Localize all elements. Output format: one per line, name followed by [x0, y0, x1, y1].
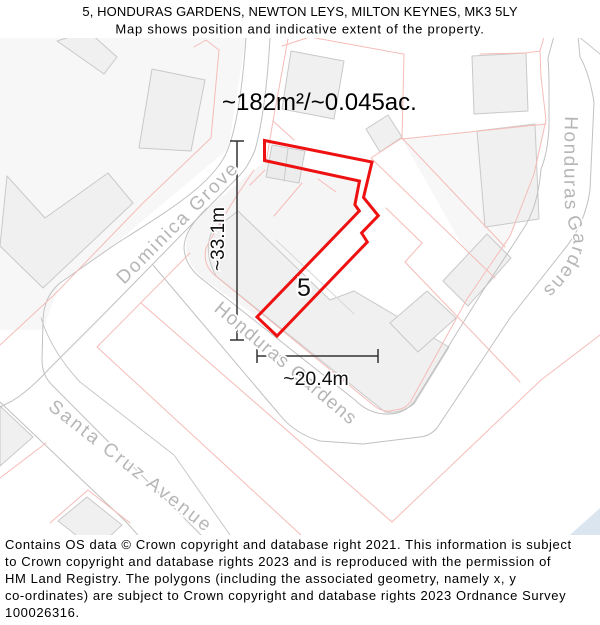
svg-text:5: 5 — [297, 274, 311, 302]
svg-text:to Crown copyright and databas: to Crown copyright and database rights 2… — [5, 554, 551, 569]
svg-text:~20.4m: ~20.4m — [283, 368, 349, 390]
svg-text:Contains OS data © Crown copyr: Contains OS data © Crown copyright and d… — [5, 537, 572, 552]
svg-text:100026316.: 100026316. — [5, 605, 80, 620]
svg-text:HM Land Registry. The polygons: HM Land Registry. The polygons (includin… — [5, 571, 516, 586]
svg-text:Map shows position and indicat: Map shows position and indicative extent… — [115, 22, 484, 37]
svg-text:co-ordinates) are subject to C: co-ordinates) are subject to Crown copyr… — [5, 588, 566, 603]
svg-text:5, HONDURAS GARDENS, NEWTON LE: 5, HONDURAS GARDENS, NEWTON LEYS, MILTON… — [82, 4, 517, 19]
svg-text:~33.1m: ~33.1m — [208, 207, 229, 271]
svg-text:~182m²/~0.045ac.: ~182m²/~0.045ac. — [222, 89, 417, 116]
